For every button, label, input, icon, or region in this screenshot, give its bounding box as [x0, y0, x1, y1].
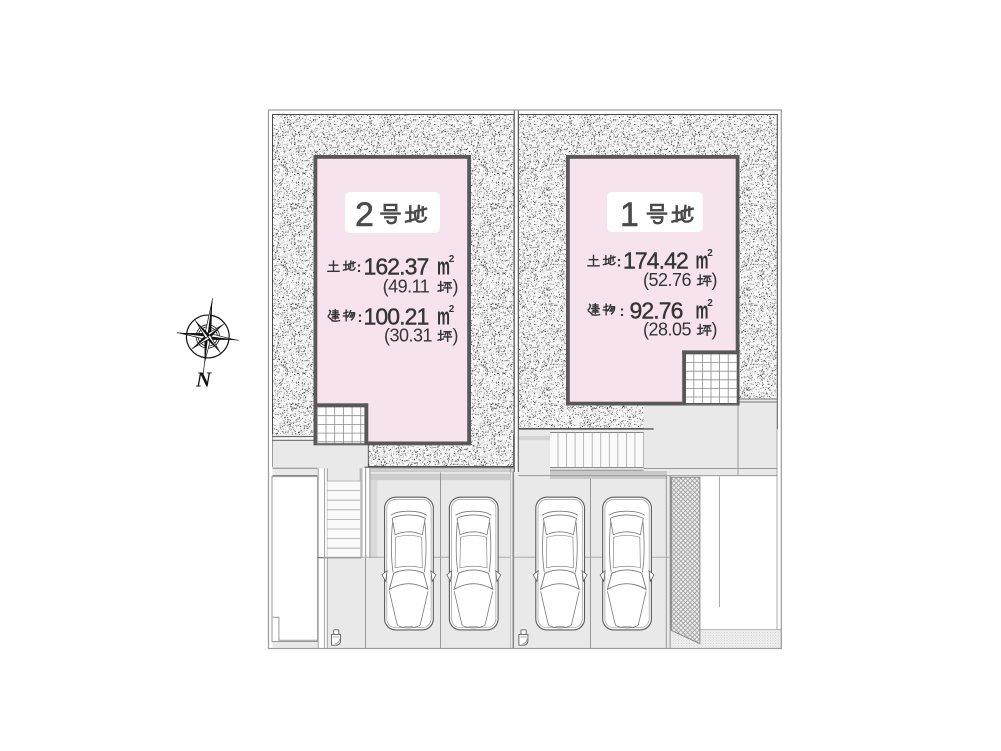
- svg-text:(30.31: (30.31: [384, 326, 433, 346]
- svg-text:2: 2: [707, 248, 713, 259]
- svg-text:): ): [453, 277, 459, 297]
- svg-text:2: 2: [707, 298, 713, 309]
- svg-text::: :: [358, 309, 363, 326]
- svg-text:): ): [712, 270, 718, 290]
- svg-text:N: N: [195, 368, 212, 392]
- svg-text:(49.11: (49.11: [383, 277, 430, 297]
- svg-text:): ): [712, 319, 718, 339]
- svg-text:2: 2: [449, 304, 455, 315]
- svg-text:1: 1: [620, 196, 639, 234]
- svg-text:2: 2: [355, 196, 374, 234]
- svg-text::: :: [620, 303, 625, 320]
- svg-text:2: 2: [449, 254, 455, 265]
- svg-text:(52.76: (52.76: [643, 270, 692, 290]
- svg-text:(28.05: (28.05: [643, 319, 692, 339]
- svg-text::: :: [357, 259, 362, 276]
- svg-text::: :: [617, 254, 622, 271]
- svg-text:): ): [453, 326, 459, 346]
